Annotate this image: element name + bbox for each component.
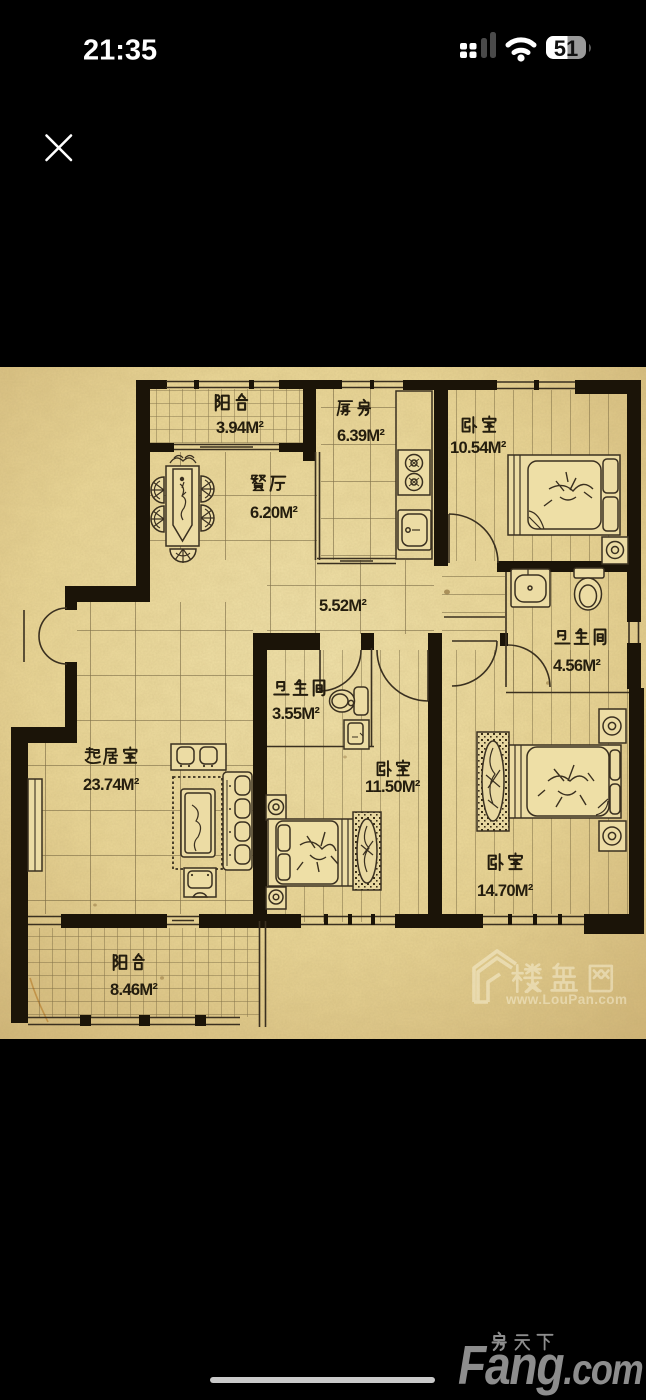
svg-text:3.94M²: 3.94M² (216, 419, 264, 437)
svg-text:11.50M²: 11.50M² (365, 778, 421, 796)
svg-text:23.74M²: 23.74M² (83, 776, 140, 794)
svg-text:8.46M²: 8.46M² (110, 981, 158, 999)
svg-text:3.55M²: 3.55M² (272, 705, 320, 723)
svg-text:51: 51 (554, 36, 578, 61)
svg-text:6.39M²: 6.39M² (337, 427, 385, 445)
svg-text:10.54M²: 10.54M² (450, 439, 507, 457)
svg-text:6.20M²: 6.20M² (250, 504, 298, 522)
svg-text:www.LouPan.com: www.LouPan.com (505, 992, 627, 1007)
svg-text:21:35: 21:35 (83, 35, 157, 67)
svg-text:5.52M²: 5.52M² (319, 597, 367, 615)
svg-text:14.70M²: 14.70M² (477, 882, 534, 900)
svg-text:4.56M²: 4.56M² (553, 657, 601, 675)
